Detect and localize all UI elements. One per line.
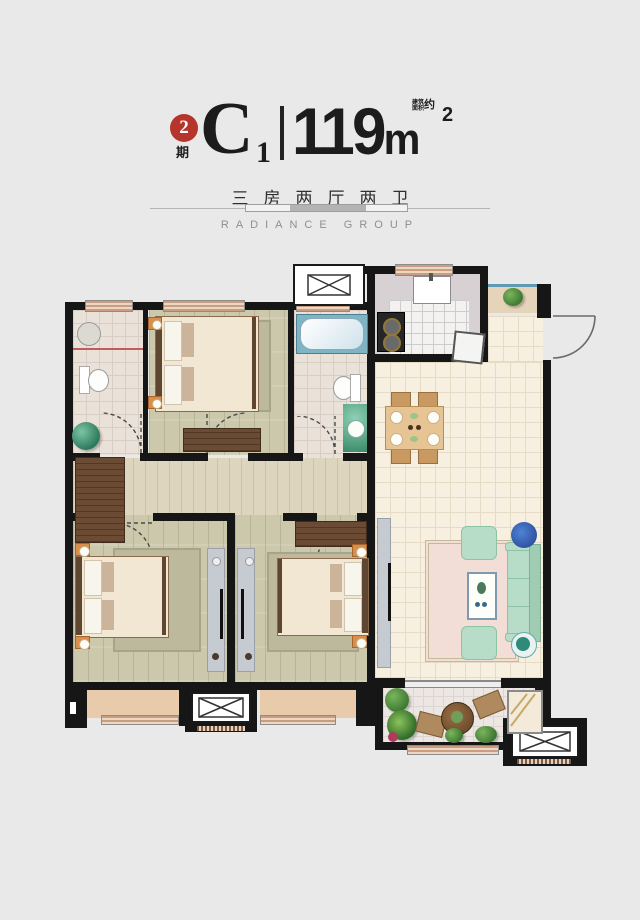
bed2-footboard	[278, 559, 282, 633]
bay-window-master-glass	[101, 715, 179, 725]
kitchen-sink-icon	[413, 276, 451, 304]
bay-window-master	[87, 690, 179, 718]
area-value: 119m	[292, 98, 418, 173]
title-row: 2 期 C 1 119m 建筑面积 约 2	[170, 92, 470, 170]
bath2-vanity-plants	[343, 404, 367, 452]
toilet1-icon	[88, 369, 109, 392]
teal-plant-icon	[511, 632, 537, 658]
balcony-sliding-door	[405, 680, 501, 688]
entry-floor	[488, 316, 543, 364]
master-pillow	[84, 598, 102, 634]
bed2-accent-pillow	[330, 600, 342, 628]
bed3-footboard	[252, 317, 256, 409]
entrance-door-icon	[551, 312, 601, 364]
toilet2-tank	[350, 374, 361, 402]
living-tv-cabinet	[377, 518, 391, 668]
shower-rail	[73, 348, 143, 350]
wall-bed2-top-a	[283, 513, 317, 521]
coffee-table-icon	[467, 572, 497, 620]
corner-notch	[70, 702, 76, 714]
header: 2 期 C 1 119m 建筑面积 约 2 三房两厅两卫	[0, 92, 640, 209]
balcony-plant-icon	[475, 726, 497, 743]
phase-badge: 2	[170, 114, 198, 142]
unit-number: 1	[256, 136, 271, 170]
dining-chair	[418, 448, 438, 464]
fridge-icon	[451, 330, 485, 364]
shaft-right-hatch	[517, 759, 571, 764]
balcony-flower-icon	[388, 732, 398, 742]
master-accent-pillow	[102, 600, 114, 630]
master-pillow	[84, 560, 102, 596]
shaft-bottom-hatch	[197, 726, 245, 731]
wall-bath2-kitchen	[367, 266, 375, 462]
bay-cap-b	[356, 690, 375, 726]
master-accent-pillow	[102, 562, 114, 592]
armchair-icon	[461, 526, 497, 560]
master-wardrobe	[75, 457, 125, 543]
master-nightstand	[75, 636, 90, 649]
bath2-door-icon	[295, 416, 337, 456]
bed3-pillow	[164, 365, 182, 405]
window-kitchen	[395, 264, 453, 276]
sofa-back	[529, 544, 541, 642]
bedroom2-nightstand	[352, 635, 367, 648]
divider-bar-icon	[280, 106, 284, 160]
blue-plant-icon	[511, 522, 537, 548]
floor-plan	[55, 260, 587, 772]
wall-balcony-left	[375, 686, 383, 750]
bed3-pillow	[164, 321, 182, 361]
wall-hall-top-b	[140, 453, 208, 461]
vent-shaft-bottom	[191, 692, 251, 723]
wall-right	[543, 360, 551, 690]
unit-letter: C	[200, 92, 253, 166]
window-bath1	[85, 300, 133, 312]
divider-ornament	[245, 204, 408, 212]
armchair-icon	[461, 626, 497, 660]
master-bed	[75, 556, 169, 638]
master-footboard	[162, 557, 166, 635]
balcony-plant-icon	[445, 728, 463, 743]
bed3-accent-pillow	[182, 367, 194, 401]
wall-bed3-bath2	[288, 310, 294, 458]
bed3-nightstand	[148, 396, 162, 409]
bed2-pillow	[344, 598, 362, 632]
balcony-cabinet	[507, 690, 543, 734]
bay-window-bedroom2-glass	[260, 715, 336, 725]
master-tv-cabinet	[207, 548, 225, 672]
bedroom2-bed	[277, 558, 369, 636]
wall-left	[65, 302, 73, 692]
window-bedroom3	[163, 300, 245, 312]
dining-chair	[391, 448, 411, 464]
bath1-door-icon	[99, 411, 143, 455]
wall-hall-top-d	[343, 453, 367, 461]
wall-bath1-bed3	[143, 310, 148, 455]
phase-label: 期	[176, 142, 189, 161]
bed3-accent-pillow	[182, 323, 194, 357]
floor-plan-page: { "header": { "phase_number": "2", "phas…	[0, 0, 640, 920]
bed2-pillow	[344, 562, 362, 596]
ledge-plant-icon	[503, 288, 523, 306]
wall-ledge-corner	[537, 284, 551, 318]
stove-icon	[377, 312, 405, 352]
wall-corner-bl	[65, 690, 87, 728]
bedroom2-tv-cabinet	[237, 548, 255, 672]
wall-master-bed2	[227, 513, 235, 682]
area-note: 建筑面积 约	[412, 100, 435, 112]
area-unit: m	[384, 115, 418, 164]
bath1-plant-icon	[72, 422, 100, 450]
window-balcony	[407, 745, 499, 755]
bay-window-bedroom2	[260, 690, 356, 718]
master-headboard	[76, 557, 82, 635]
balcony-plant-icon	[385, 688, 409, 712]
bathtub-icon	[300, 318, 364, 350]
bed3-nightstand	[148, 317, 162, 330]
bedroom2-nightstand	[352, 544, 367, 557]
washbasin-icon	[77, 322, 101, 346]
brand-text: RADIANCE GROUP	[0, 219, 640, 231]
vent-shaft-top	[293, 264, 365, 306]
area-exponent: 2	[442, 104, 453, 127]
bedroom3-bed	[155, 316, 259, 412]
bedroom3-dresser	[183, 428, 261, 452]
sofa-icon	[507, 550, 531, 634]
dining-table	[385, 406, 444, 450]
bed2-accent-pillow	[330, 564, 342, 592]
wall-master-top-b	[153, 513, 227, 521]
bed2-headboard	[362, 559, 368, 633]
wall-kitchen-bottom	[375, 354, 463, 362]
master-nightstand	[75, 543, 90, 556]
wall-bed2-top-b	[357, 513, 367, 521]
